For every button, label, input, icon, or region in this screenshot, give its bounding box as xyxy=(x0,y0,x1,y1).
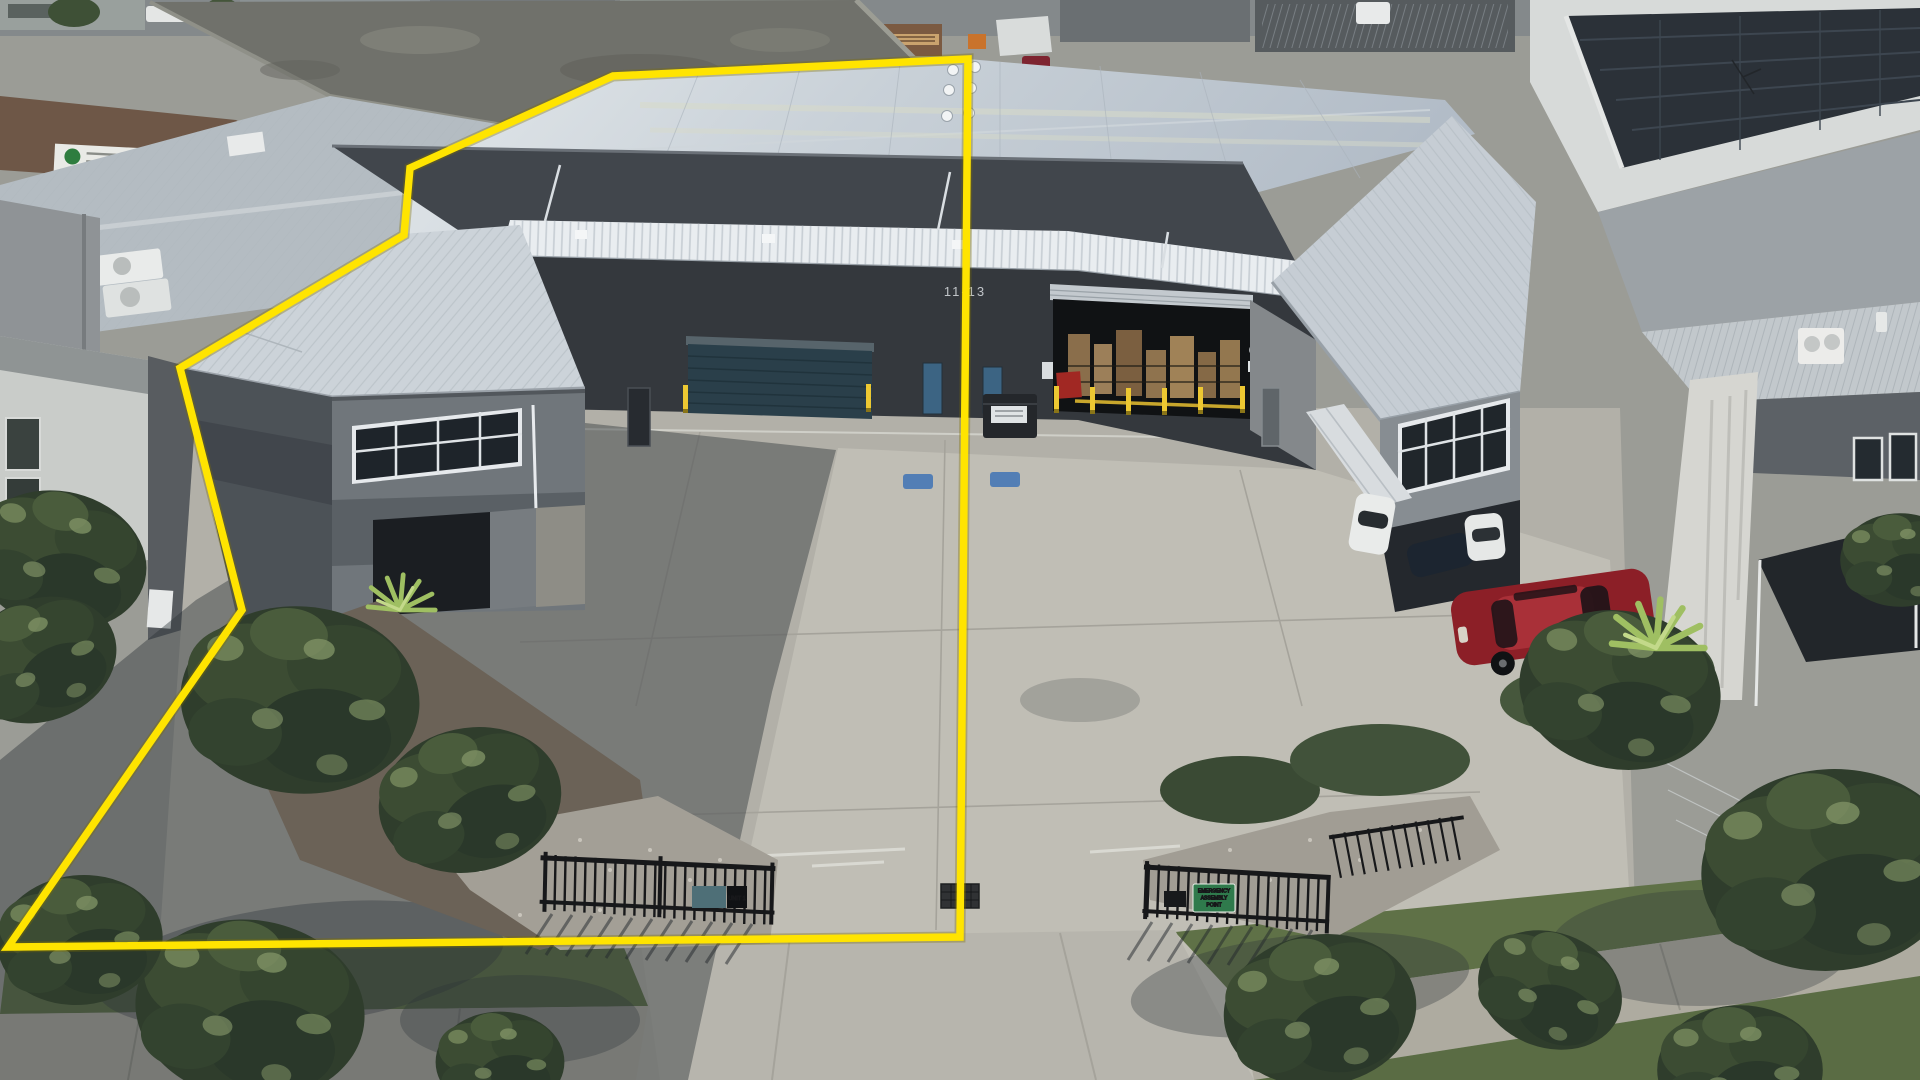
aerial-photograph: 11-13 xyxy=(0,0,1920,1080)
forklift xyxy=(968,34,986,49)
svg-text:POINT: POINT xyxy=(1206,903,1221,909)
svg-text:EMERGENCY: EMERGENCY xyxy=(1198,889,1231,895)
pillar xyxy=(490,508,536,610)
wall-sign xyxy=(1042,362,1053,379)
assembly-point-sign: EMERGENCY ASSEMBLY POINT xyxy=(1193,884,1235,912)
dumpster xyxy=(983,394,1037,438)
svg-text:ASSEMBLY: ASSEMBLY xyxy=(1201,896,1228,902)
white-shed xyxy=(996,16,1052,56)
letterbox xyxy=(1164,891,1186,907)
blue-door xyxy=(923,363,942,414)
red-forklift xyxy=(1056,371,1082,399)
gray-door xyxy=(1262,388,1280,446)
vent-pipe xyxy=(1876,312,1887,332)
unit-sign: UNIT 1 xyxy=(727,886,747,908)
company-sign xyxy=(692,886,726,908)
side-door xyxy=(628,388,650,446)
svg-text:UNIT 1: UNIT 1 xyxy=(728,896,745,902)
white-truck-2 xyxy=(1356,2,1390,24)
